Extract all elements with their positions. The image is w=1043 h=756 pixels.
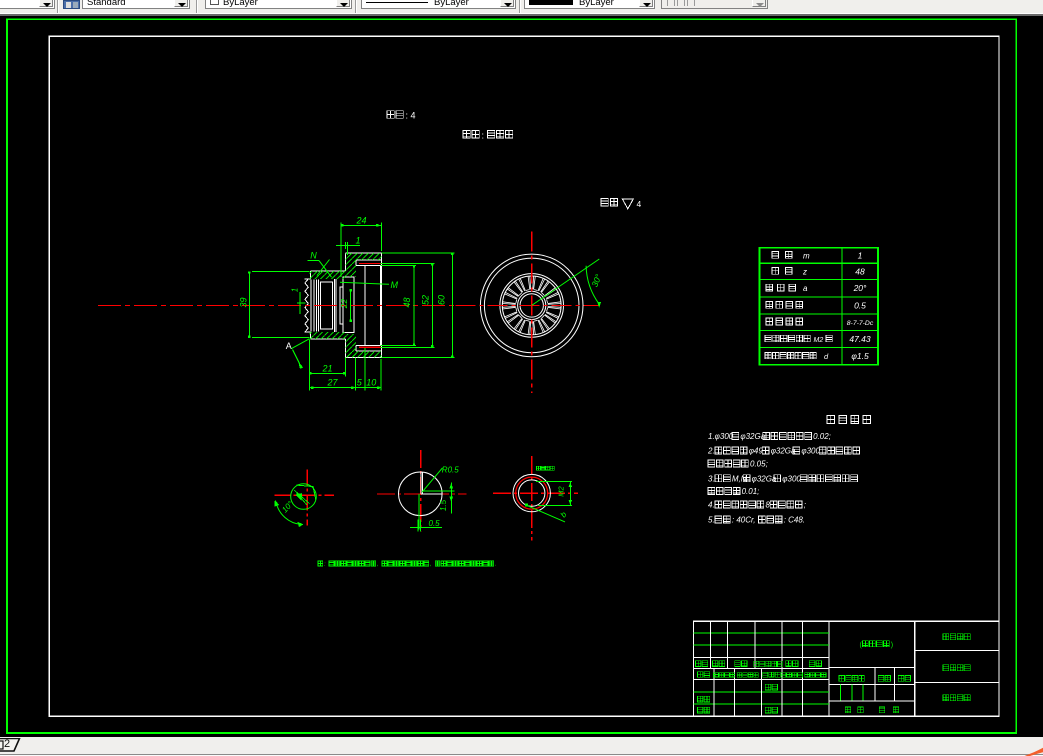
svg-text:48: 48 <box>855 266 865 276</box>
svg-text:0.5: 0.5 <box>854 300 866 310</box>
svg-text:): ) <box>891 642 893 649</box>
svg-text:2.: 2. <box>707 447 715 456</box>
svg-text:φ32Ga: φ32Ga <box>771 447 796 456</box>
svg-text:φ32Ga: φ32Ga <box>740 432 765 441</box>
svg-text:: 40Cr,: : 40Cr, <box>732 516 756 525</box>
svg-text:4.: 4. <box>708 501 715 510</box>
svg-text:27: 27 <box>326 377 338 387</box>
svg-text:3.: 3. <box>708 474 715 483</box>
svg-text:1: 1 <box>291 288 300 292</box>
svg-text:M2: M2 <box>814 337 824 344</box>
svg-text:,: , <box>377 562 379 568</box>
svg-text:21: 21 <box>321 363 332 373</box>
svg-text:24: 24 <box>356 216 367 226</box>
svg-text:1.5: 1.5 <box>439 499 448 511</box>
svg-text:.: . <box>495 562 497 568</box>
svg-text:M: M <box>391 280 399 290</box>
svg-text:0.05;: 0.05; <box>750 460 768 469</box>
svg-text:1: 1 <box>858 250 863 260</box>
svg-text:0.01;: 0.01; <box>742 487 760 496</box>
svg-text:N: N <box>310 250 317 260</box>
svg-text:A: A <box>286 341 292 351</box>
svg-text:39: 39 <box>239 297 249 307</box>
svg-text:47.43: 47.43 <box>849 334 871 344</box>
svg-text:φ1.5: φ1.5 <box>851 351 869 361</box>
svg-text:52: 52 <box>420 295 430 305</box>
svg-text:: C48.: : C48. <box>784 516 805 525</box>
svg-text:0.5: 0.5 <box>429 519 441 528</box>
svg-text:a: a <box>803 284 808 293</box>
svg-text:22: 22 <box>339 299 349 310</box>
svg-text:8-7-7-Dc: 8-7-7-Dc <box>847 320 874 327</box>
svg-text:5.: 5. <box>708 516 715 525</box>
svg-text:48: 48 <box>402 297 412 307</box>
svg-text::: : <box>482 130 485 140</box>
svg-text:φ32Ga: φ32Ga <box>752 474 777 483</box>
svg-text:z: z <box>802 267 807 276</box>
svg-text:1.φ300: 1.φ300 <box>708 432 734 441</box>
svg-text:M2: M2 <box>557 485 566 496</box>
svg-text:10: 10 <box>366 377 376 387</box>
svg-text:m: m <box>803 251 810 260</box>
svg-text:60: 60 <box>437 295 447 305</box>
svg-text:20°: 20° <box>853 283 867 293</box>
svg-text:,: , <box>430 562 432 568</box>
svg-text:φ300: φ300 <box>782 474 801 483</box>
svg-text:;: ; <box>804 501 806 510</box>
svg-text:8: 8 <box>766 501 771 510</box>
svg-text:1: 1 <box>356 235 361 245</box>
svg-text:0.02;: 0.02; <box>813 432 831 441</box>
svg-text:4: 4 <box>637 199 642 209</box>
svg-text:φ49: φ49 <box>749 447 764 456</box>
svg-text:R0.5: R0.5 <box>442 465 459 474</box>
svg-text:: 4: : 4 <box>406 111 416 121</box>
svg-text:φ300: φ300 <box>801 447 820 456</box>
